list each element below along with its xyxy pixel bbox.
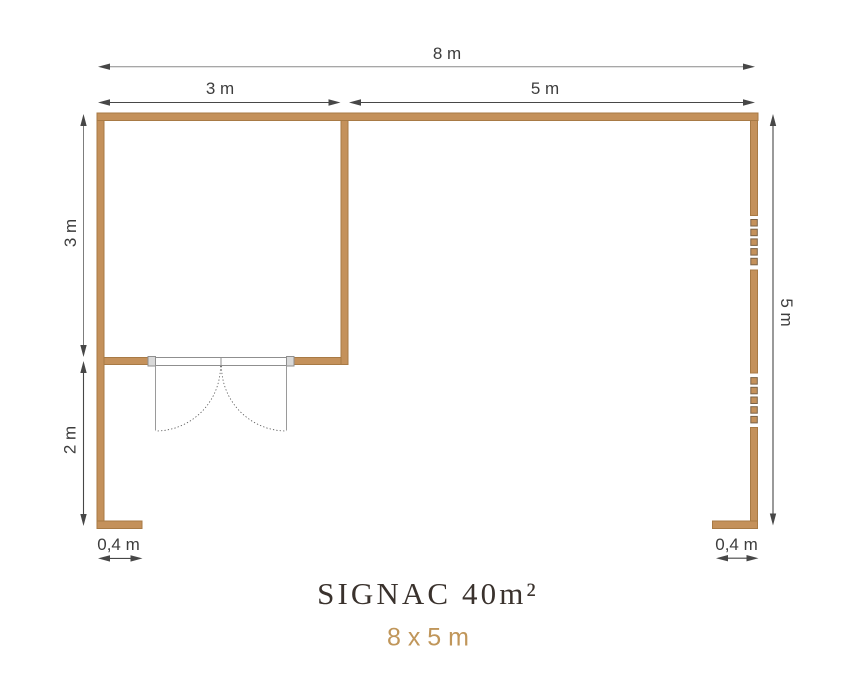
svg-text:3 m: 3 m — [61, 219, 80, 247]
svg-text:8 m: 8 m — [433, 44, 461, 63]
svg-text:0,4 m: 0,4 m — [97, 535, 140, 554]
svg-text:3 m: 3 m — [206, 79, 234, 98]
svg-text:5 m: 5 m — [777, 298, 796, 326]
svg-text:8 x 5 m: 8 x 5 m — [387, 624, 469, 652]
svg-text:2 m: 2 m — [61, 426, 80, 454]
svg-text:SIGNAC 40m²: SIGNAC 40m² — [317, 576, 539, 611]
svg-text:5 m: 5 m — [531, 79, 559, 98]
svg-text:0,4 m: 0,4 m — [715, 535, 758, 554]
